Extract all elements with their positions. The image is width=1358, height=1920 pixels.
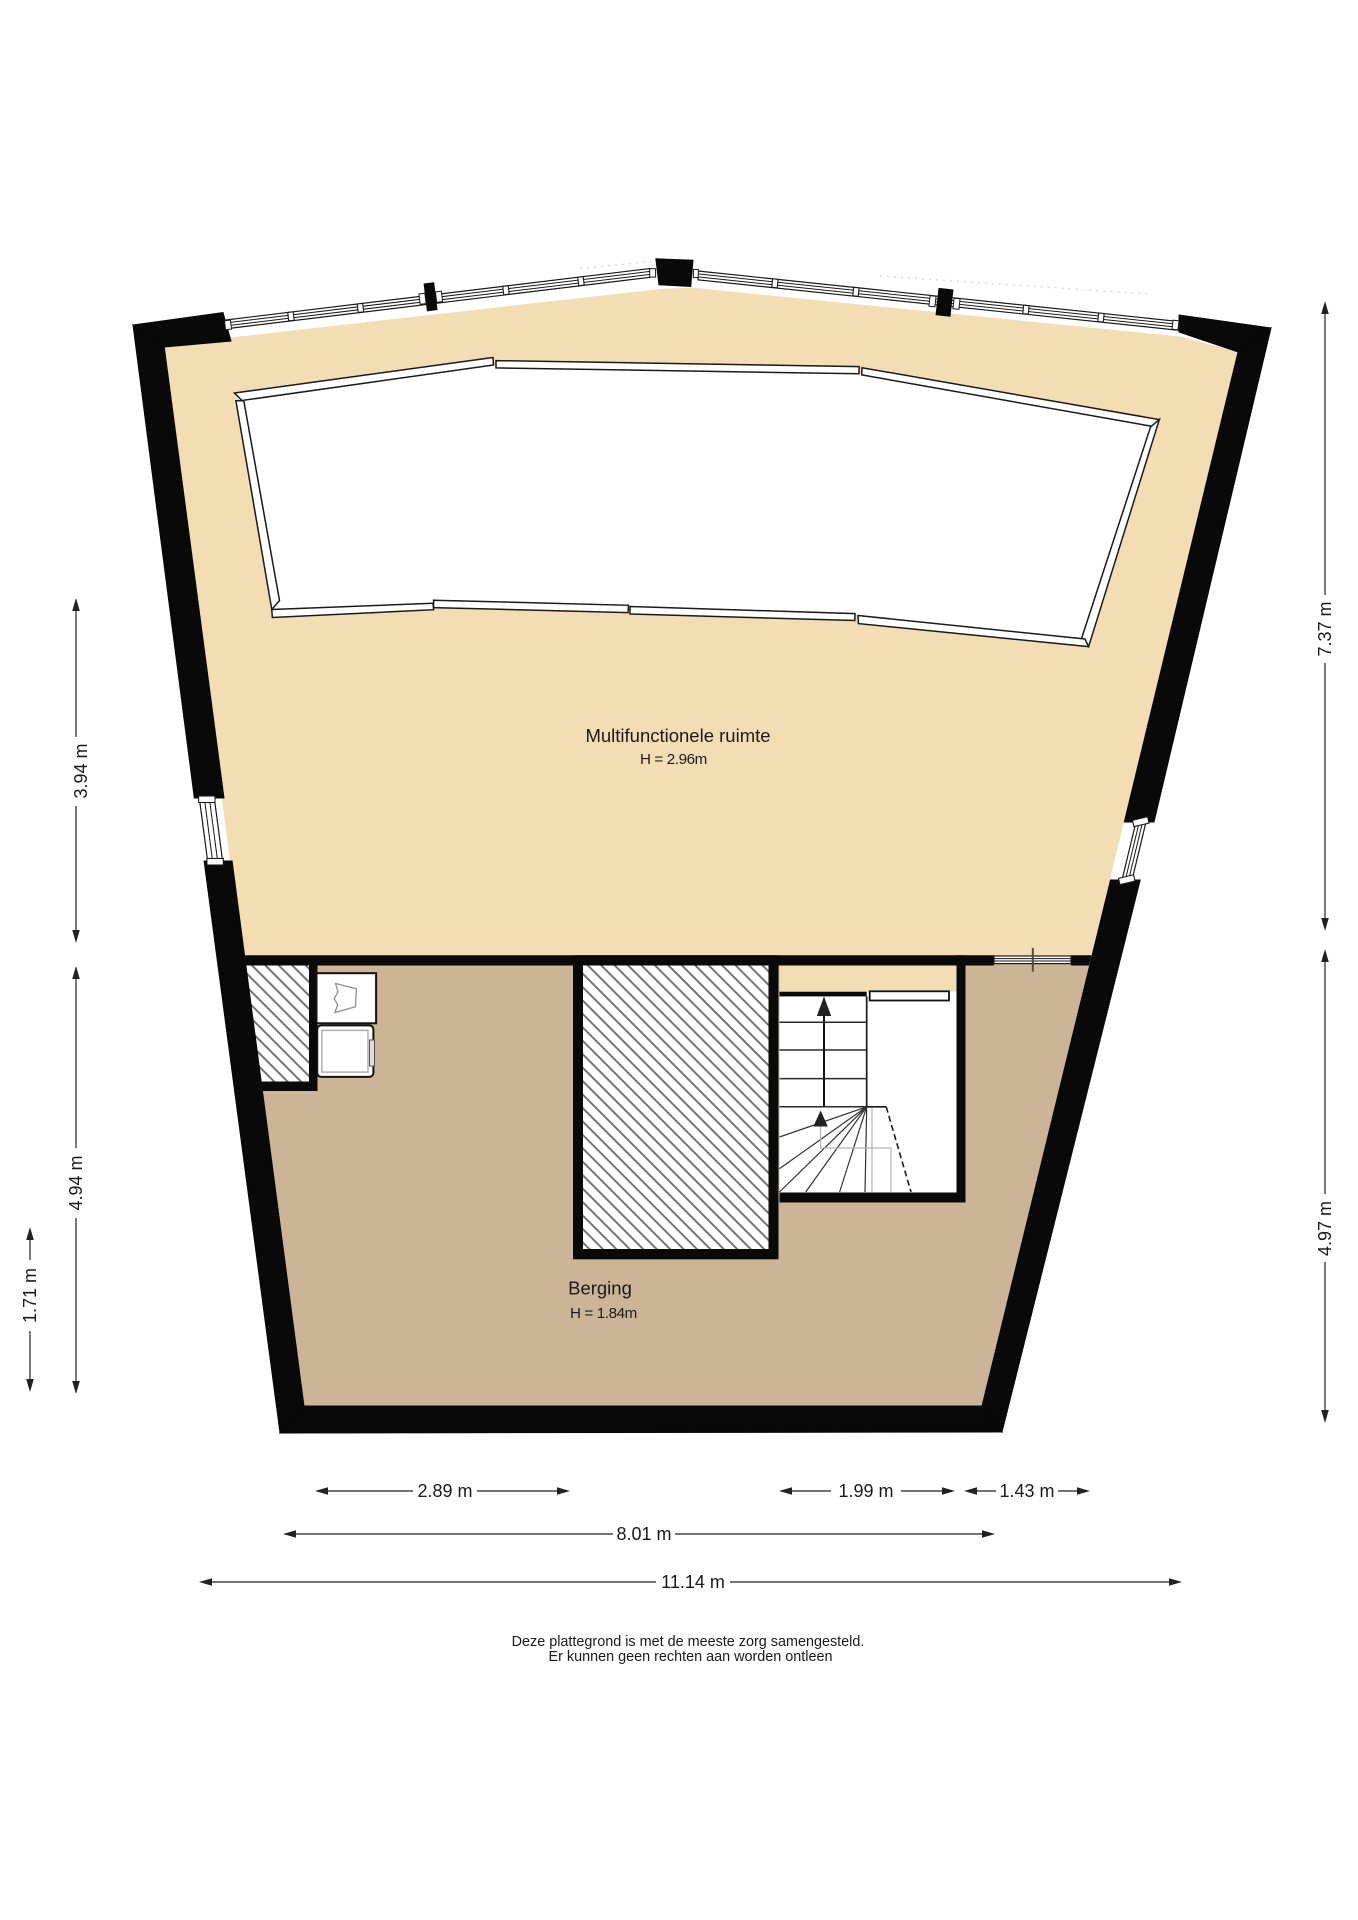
svg-text:1.43 m: 1.43 m — [999, 1481, 1054, 1501]
svg-text:Berging: Berging — [568, 1278, 632, 1299]
svg-text:Multifunctionele ruimte: Multifunctionele ruimte — [585, 725, 770, 746]
svg-text:H = 2.96m: H = 2.96m — [640, 751, 707, 768]
svg-text:Deze plattegrond is met de mee: Deze plattegrond is met de meeste zorg s… — [512, 1634, 865, 1650]
svg-text:4.94 m: 4.94 m — [66, 1155, 86, 1210]
svg-text:Er kunnen geen rechten aan wor: Er kunnen geen rechten aan worden ontlee… — [548, 1649, 832, 1665]
svg-text:7.37 m: 7.37 m — [1315, 601, 1335, 656]
svg-text:1.99 m: 1.99 m — [838, 1481, 893, 1501]
svg-text:4.97 m: 4.97 m — [1315, 1201, 1335, 1256]
svg-text:3.94 m: 3.94 m — [71, 743, 91, 798]
svg-text:1.71 m: 1.71 m — [20, 1268, 40, 1323]
svg-text:H = 1.84m: H = 1.84m — [570, 1305, 637, 1322]
svg-text:8.01 m: 8.01 m — [616, 1524, 671, 1544]
svg-text:11.14 m: 11.14 m — [661, 1572, 725, 1592]
svg-text:2.89 m: 2.89 m — [417, 1481, 472, 1501]
